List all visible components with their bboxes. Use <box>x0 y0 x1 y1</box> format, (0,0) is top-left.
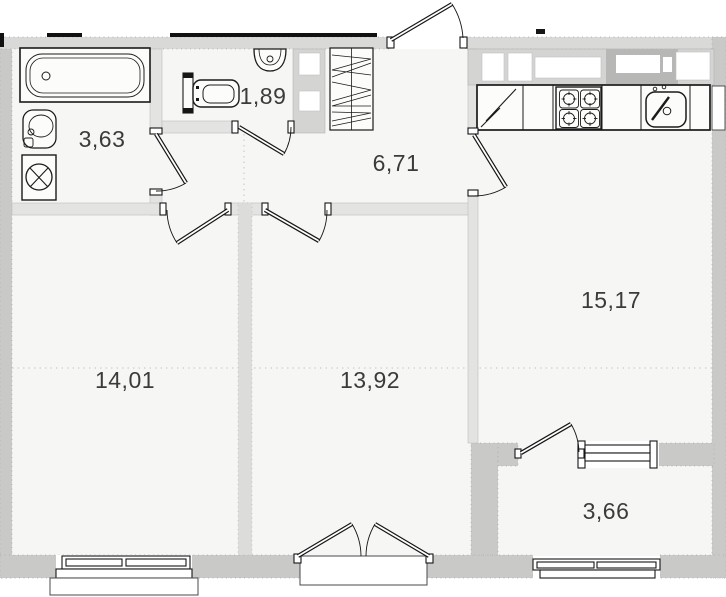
wardrobe-icon <box>330 48 373 130</box>
balcony-area-label: 3,66 <box>583 498 630 524</box>
kitchen-area-label: 15,17 <box>581 287 641 313</box>
washing-machine-icon <box>22 155 56 200</box>
living-room-area-label: 13,92 <box>340 367 400 393</box>
wall-balcony-left <box>471 443 498 555</box>
window-pane-right <box>597 562 656 568</box>
floor-plan: 3,63 1,89 6,71 14,01 13,92 15,17 3,66 <box>0 0 726 597</box>
bedroom-area-label: 14,01 <box>95 367 155 393</box>
wc-shaft-inset-1 <box>299 53 320 75</box>
window-bedroom <box>50 555 198 595</box>
floor-plan-drawing: 3,63 1,89 6,71 14,01 13,92 15,17 3,66 <box>0 0 726 597</box>
bathtub-icon <box>20 48 150 102</box>
wall-kitchen-lower <box>468 196 478 443</box>
duct-dark-inset <box>616 55 660 73</box>
window-balcony-outer <box>533 556 660 578</box>
wall-hall-bottom-b <box>328 203 473 215</box>
wall-bottom-right <box>660 555 726 578</box>
french-door-threshold <box>300 556 427 585</box>
wall-between-rooms <box>238 203 252 555</box>
hallway-area-label: 6,71 <box>373 150 420 176</box>
duct-inset-2 <box>508 53 532 81</box>
neighbour-line-b <box>170 33 377 37</box>
window-frame-lower <box>540 570 655 578</box>
window-pane-left <box>537 562 594 568</box>
corner-tick <box>0 33 4 47</box>
wall-balcony-top-b <box>657 443 714 466</box>
window-frame-b <box>585 453 650 461</box>
window-pane-left <box>66 559 122 566</box>
wall-shaft-right <box>712 86 725 130</box>
wc-shaft <box>293 49 325 133</box>
wall-wc-bottom <box>162 121 237 133</box>
window-balcony-inner <box>578 441 659 468</box>
window-frame-a <box>585 445 650 453</box>
window-cap-right <box>650 441 657 468</box>
duct-inset-4 <box>676 52 710 80</box>
wall-bathroom-bottom <box>12 203 163 215</box>
window-pane-right <box>126 559 186 566</box>
neighbour-line-a <box>47 33 82 37</box>
duct-dark-notch <box>663 57 672 72</box>
window-sill-outside <box>50 578 198 595</box>
duct-inset-3 <box>535 57 601 78</box>
duct-inset-1 <box>482 53 504 81</box>
wall-top-right <box>465 37 726 49</box>
wc-area-label: 1,89 <box>240 83 287 109</box>
entrance-door <box>387 4 467 48</box>
bathroom-area-label: 3,63 <box>79 126 126 152</box>
wall-bottom-center <box>427 555 533 578</box>
wall-bathroom-right-upper <box>150 49 162 134</box>
wall-left <box>0 37 12 578</box>
wc-shaft-inset-2 <box>299 91 320 111</box>
washbasin-icon <box>23 110 56 148</box>
window-frame-lower <box>56 569 192 578</box>
kitchen-counter <box>477 85 710 130</box>
duct-tick <box>536 29 545 34</box>
